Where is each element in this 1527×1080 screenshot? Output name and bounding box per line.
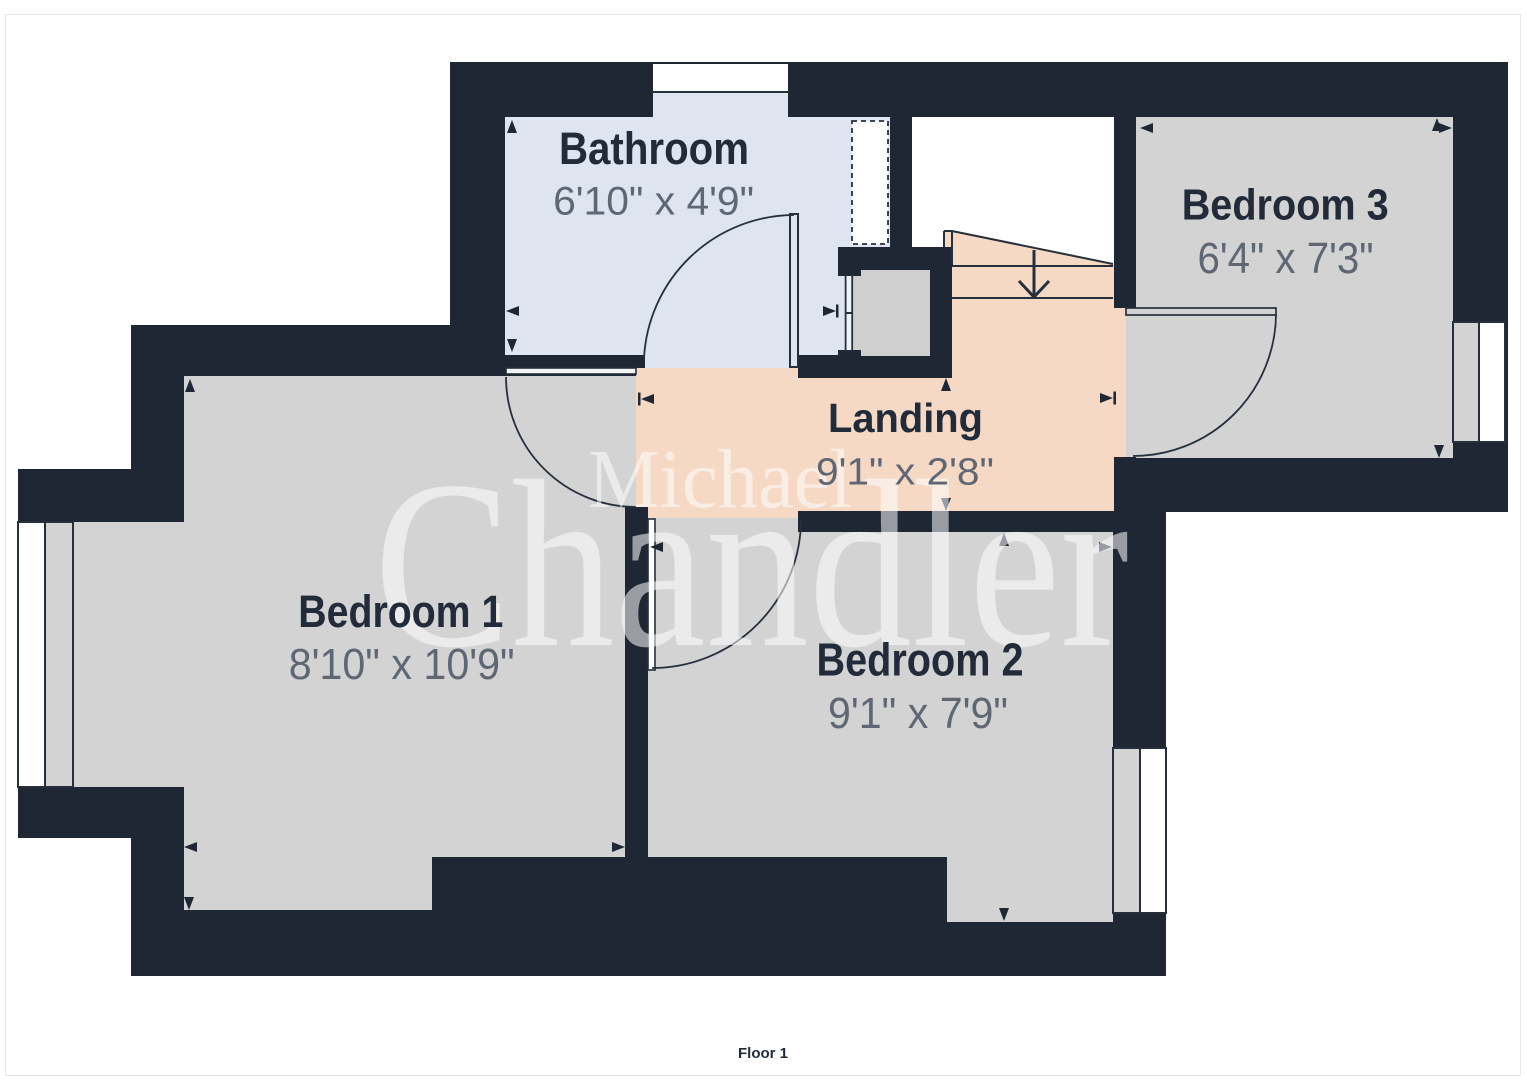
svg-text:Floor 1: Floor 1 — [738, 1045, 788, 1062]
svg-text:8'10" x 10'9": 8'10" x 10'9" — [289, 641, 515, 689]
svg-text:6'10" x 4'9": 6'10" x 4'9" — [553, 180, 754, 224]
svg-text:Bedroom 2: Bedroom 2 — [817, 633, 1024, 685]
svg-text:Landing: Landing — [828, 395, 983, 441]
svg-text:9'1" x 7'9": 9'1" x 7'9" — [828, 690, 1008, 738]
svg-text:6'4" x 7'3": 6'4" x 7'3" — [1198, 235, 1374, 283]
svg-text:9'1" x 2'8": 9'1" x 2'8" — [816, 452, 994, 494]
svg-text:Bedroom 1: Bedroom 1 — [298, 586, 503, 637]
svg-text:Bathroom: Bathroom — [559, 123, 749, 174]
svg-text:Bedroom 3: Bedroom 3 — [1182, 182, 1389, 230]
